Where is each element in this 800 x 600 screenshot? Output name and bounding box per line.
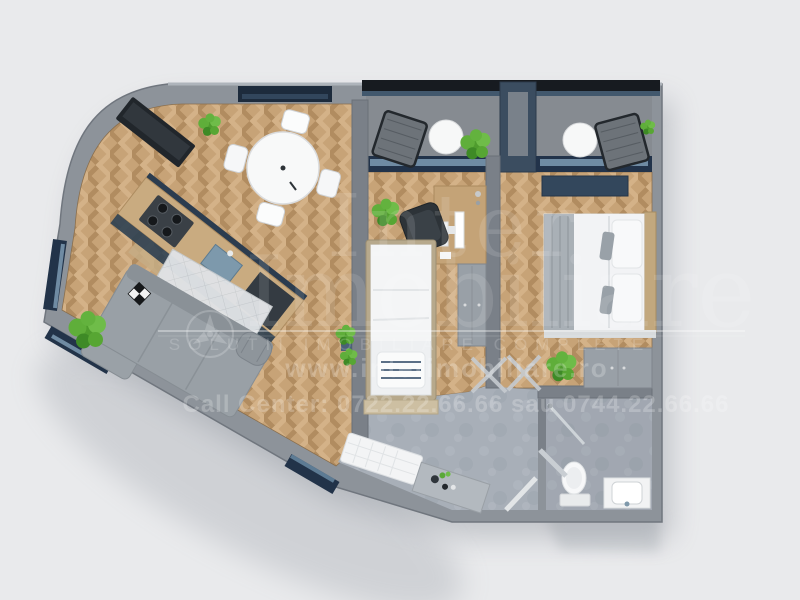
balcony-right-table xyxy=(563,123,597,157)
faucet xyxy=(625,502,630,507)
watermark-tagline: SOLUTII IMOBILIARE COMPLETE xyxy=(169,335,651,354)
floor-plan-render: Inter Imobiliare SOLUTII IMOBILIARE COMP… xyxy=(0,0,800,600)
watermark-website: www.interimobiliare.ro xyxy=(284,353,608,383)
watermark-phone: Call Center: 0722.22.66.66 sau 0744.22.6… xyxy=(182,391,729,418)
balcony-left-table xyxy=(429,120,463,154)
sink-vanity xyxy=(604,478,650,508)
watermark-brand-line2: Imobiliare xyxy=(245,236,756,350)
